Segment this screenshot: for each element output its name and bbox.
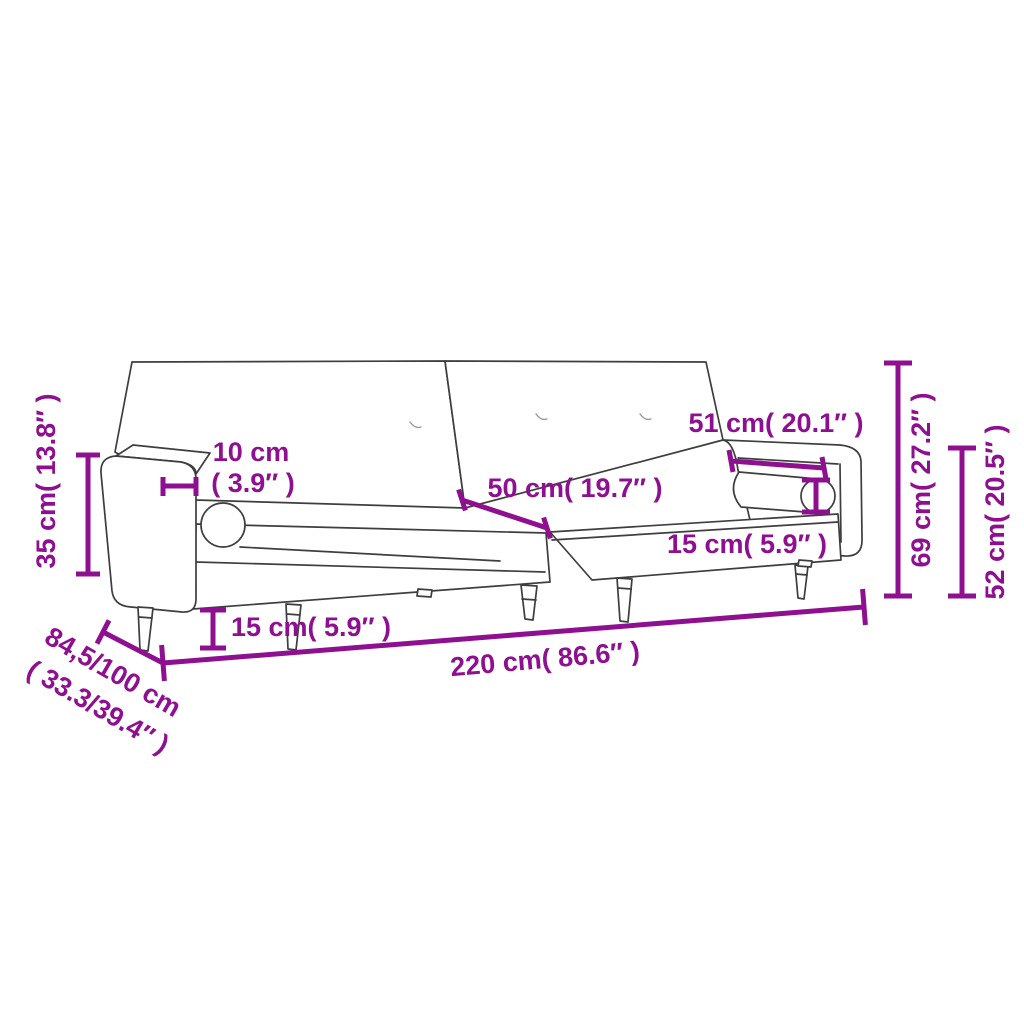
leg bbox=[795, 565, 808, 599]
leg bbox=[521, 585, 537, 620]
dim-label-leg-height: 15 cm( 5.9″ ) bbox=[231, 612, 391, 642]
bolster-cushion-left bbox=[201, 503, 245, 547]
dim-armrest-height: 35 cm( 13.8″ ) bbox=[31, 393, 100, 574]
frame-clip bbox=[417, 589, 432, 597]
dim-label-armrest-width-cm: 10 cm bbox=[213, 437, 290, 467]
dim-label-armrest-height: 35 cm( 13.8″ ) bbox=[31, 393, 61, 568]
armrest-left bbox=[101, 456, 196, 612]
leg-joint bbox=[522, 599, 536, 600]
frame-clip bbox=[798, 560, 812, 567]
dim-seat-back-height: 52 cm( 20.5″ ) bbox=[948, 424, 1010, 599]
dim-label-total-width: 220 cm( 86.6″ ) bbox=[449, 636, 641, 682]
dim-depth: 84,5/100 cm ( 33.3/39.4″ ) bbox=[22, 620, 186, 759]
armrest-right-inner-edge bbox=[840, 464, 841, 542]
dim-label-backrest-section: 50 cm( 19.7″ ) bbox=[487, 473, 662, 503]
dim-label-total-height: 69 cm( 27.2″ ) bbox=[906, 392, 936, 567]
leg-joint bbox=[796, 574, 807, 575]
leg-joint bbox=[139, 617, 152, 618]
dim-line bbox=[76, 455, 100, 574]
dim-total-height: 69 cm( 27.2″ ) bbox=[884, 363, 936, 596]
leg-joint bbox=[618, 588, 631, 589]
leg bbox=[138, 607, 153, 651]
dim-line bbox=[200, 610, 226, 648]
dim-label-bolster-diameter: 15 cm( 5.9″ ) bbox=[667, 529, 827, 559]
dimension-diagram-canvas: 35 cm( 13.8″ ) 10 cm ( 3.9″ ) 50 cm( 19.… bbox=[0, 0, 1024, 1024]
dim-label-armrest-width-in: ( 3.9″ ) bbox=[211, 468, 294, 498]
dim-label-seat-back-height: 52 cm( 20.5″ ) bbox=[980, 424, 1010, 599]
sofa-dimension-diagram: 35 cm( 13.8″ ) 10 cm ( 3.9″ ) 50 cm( 19.… bbox=[0, 0, 1024, 1024]
dim-line bbox=[948, 448, 976, 596]
dim-label-armrest-length: 51 cm( 20.1″ ) bbox=[688, 408, 863, 438]
leg bbox=[617, 578, 632, 622]
